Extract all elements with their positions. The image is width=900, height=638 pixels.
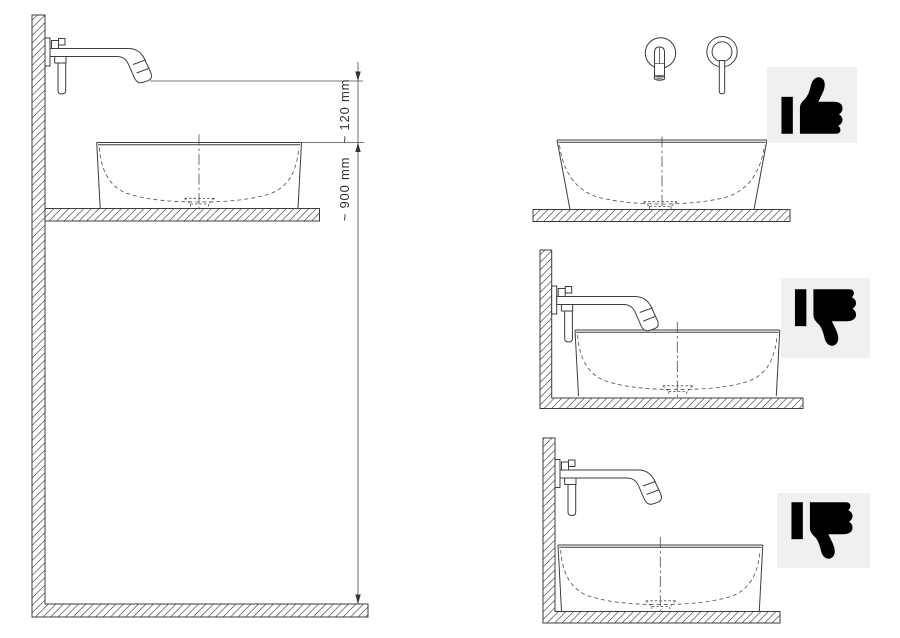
dimension-arrow [355,72,360,82]
vessel-basin [575,322,780,400]
basin-drain [644,202,678,210]
wall-and-floor [32,15,368,617]
side-view-insufficient-clearance [543,438,870,623]
wall-mounted-mixer [45,38,152,94]
wall-and-countertop [540,250,803,409]
verdict-correct [767,67,857,143]
dimension-label-spout-to-rim: ~ 120 mm [337,79,352,144]
wall-and-floor [543,438,780,623]
front-view-correct [533,37,857,222]
dimension-label-rim-to-floor: ~ 900 mm [337,157,352,222]
main-side-view: ~ 120 mm ~ 900 mm [32,15,368,617]
dimension-arrow [355,595,360,605]
handle-front-view [707,37,737,94]
spout-aerator [656,77,663,79]
dimension-lines: ~ 120 mm ~ 900 mm [150,62,364,604]
vessel-basin [558,537,763,615]
vessel-basin [97,135,302,213]
wall-mounted-mixer [552,286,659,342]
dimension-arrow [355,143,360,153]
spout-front-view [645,38,675,80]
verdict-incorrect [781,278,870,358]
countertop [533,210,790,222]
handle-lever [719,61,724,94]
verdict-incorrect [777,493,870,568]
wall-mounted-mixer [555,460,662,516]
handle-ring [712,42,732,62]
installation-diagram: ~ 120 mm ~ 900 mm [0,0,900,638]
basin-front-view [557,137,767,214]
side-view-too-low [540,250,870,409]
countertop [45,209,320,222]
